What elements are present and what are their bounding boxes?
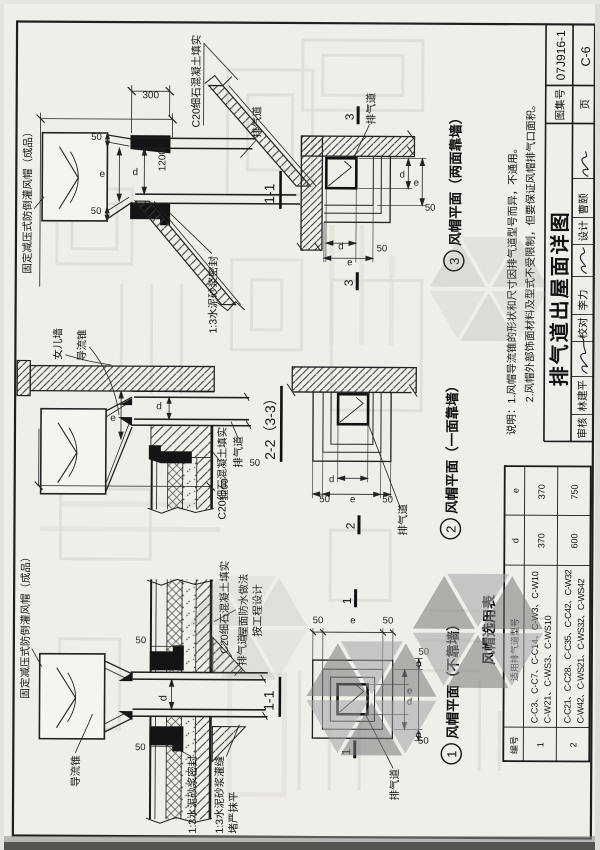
svg-text:370: 370 (536, 533, 546, 548)
svg-text:50: 50 (418, 736, 429, 747)
svg-text:校对: 校对 (576, 317, 589, 339)
svg-text:页: 页 (580, 99, 592, 110)
svg-text:曹颐: 曹颐 (577, 193, 590, 215)
svg-text:1: 1 (535, 742, 545, 747)
svg-text:排气道: 排气道 (365, 92, 378, 124)
svg-text:50: 50 (425, 203, 436, 214)
svg-text:d: d (156, 401, 162, 412)
svg-text:1: 1 (444, 751, 459, 758)
svg-text:d: d (133, 167, 139, 178)
svg-text:e: e (110, 413, 116, 424)
svg-text:审核: 审核 (576, 417, 589, 439)
svg-text:C20细石混凝土填实: C20细石混凝土填实 (216, 427, 229, 520)
svg-text:600: 600 (569, 533, 579, 548)
svg-text:C-W21、C-WS3、C-WS10: C-W21、C-WS3、C-WS10 (542, 615, 553, 723)
svg-text:女儿墙: 女儿墙 (51, 328, 64, 360)
svg-text:排气道: 排气道 (396, 504, 409, 536)
svg-text:e: e (347, 257, 352, 268)
svg-text:e: e (99, 169, 105, 180)
svg-text:1:3水泥砂浆灌缝: 1:3水泥砂浆灌缝 (213, 755, 226, 833)
svg-text:2: 2 (343, 522, 357, 529)
svg-text:排气道: 排气道 (232, 436, 245, 468)
svg-text:50: 50 (313, 615, 324, 626)
svg-text:370: 370 (537, 484, 547, 499)
svg-text:d: d (400, 170, 405, 181)
svg-text:1-1: 1-1 (261, 690, 277, 711)
svg-text:2: 2 (568, 742, 578, 747)
svg-text:e: e (350, 615, 355, 626)
svg-text:说明：1.风帽导流锥的形状和尺寸因排气道型号而异，不通用。: 说明：1.风帽导流锥的形状和尺寸因排气道型号而异，不通用。 (505, 143, 520, 435)
svg-text:d: d (329, 474, 334, 485)
svg-text:50: 50 (136, 635, 147, 646)
svg-text:1-1: 1-1 (261, 183, 277, 204)
svg-text:07J916-1: 07J916-1 (554, 30, 568, 80)
svg-text:e: e (511, 488, 521, 493)
svg-text:C-W42、C-WS21、C-WS32、C-WS42: C-W42、C-WS21、C-WS32、C-WS42 (575, 578, 586, 723)
svg-text:1200: 1200 (157, 149, 168, 172)
svg-text:C-6: C-6 (579, 46, 593, 66)
svg-text:50: 50 (249, 458, 260, 469)
svg-text:50: 50 (91, 132, 102, 143)
svg-text:1:3水泥砂浆密封: 1:3水泥砂浆密封 (186, 755, 199, 833)
svg-text:50: 50 (382, 494, 393, 505)
svg-text:3: 3 (343, 113, 357, 120)
svg-text:李力: 李力 (577, 289, 590, 310)
svg-text:300: 300 (142, 90, 159, 101)
svg-text:导流锥: 导流锥 (69, 755, 82, 787)
svg-text:C20细石混凝土填实: C20细石混凝土填实 (190, 35, 203, 128)
svg-text:1:3水泥砂浆密封: 1:3水泥砂浆密封 (206, 255, 219, 333)
svg-text:d: d (158, 695, 170, 701)
svg-text:排气道: 排气道 (251, 106, 264, 138)
svg-text:C-C21、C-C28、C-C35、C-C42、C-W32: C-C21、C-C28、C-C35、C-C42、C-W32 (562, 569, 573, 723)
svg-text:风帽平面（两面靠墙）: 风帽平面（两面靠墙） (447, 111, 464, 246)
svg-text:2: 2 (443, 526, 458, 533)
svg-text:风帽平面（一面靠墙）: 风帽平面（一面靠墙） (444, 379, 461, 514)
svg-text:排气道出屋面详图: 排气道出屋面详图 (547, 210, 572, 386)
svg-text:d: d (338, 241, 343, 252)
svg-text:e: e (414, 178, 419, 189)
svg-text:编号: 编号 (508, 736, 519, 754)
svg-text:50: 50 (319, 494, 330, 505)
svg-text:图集号: 图集号 (554, 89, 567, 121)
svg-text:3: 3 (342, 279, 356, 286)
svg-text:排气道: 排气道 (388, 768, 401, 800)
svg-text:导流锥: 导流锥 (75, 329, 88, 361)
svg-text:d: d (510, 538, 520, 543)
svg-text:750: 750 (570, 484, 580, 499)
svg-text:固定减压式防倒灌风帽（成品）: 固定减压式防倒灌风帽（成品） (21, 127, 35, 274)
svg-text:2-2（3-3）: 2-2（3-3） (262, 391, 278, 460)
svg-text:1: 1 (340, 597, 354, 604)
svg-text:50: 50 (377, 243, 388, 254)
svg-text:堵严抹平: 堵严抹平 (227, 792, 240, 834)
svg-text:50: 50 (135, 742, 146, 753)
svg-text:固定减压式防倒灌风帽（成品）: 固定减压式防倒灌风帽（成品） (19, 552, 33, 699)
svg-text:设计: 设计 (577, 220, 590, 242)
svg-text:50: 50 (383, 615, 394, 626)
svg-text:50: 50 (91, 206, 102, 217)
svg-text:林建平: 林建平 (576, 380, 589, 412)
svg-text:e: e (350, 494, 355, 505)
